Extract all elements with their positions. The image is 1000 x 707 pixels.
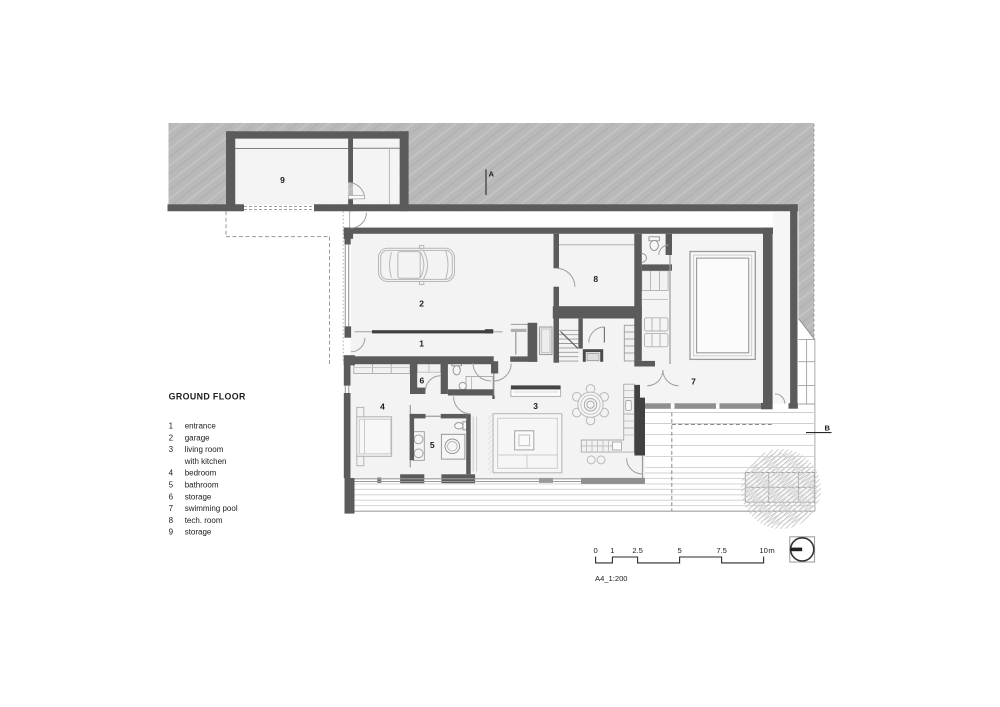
svg-text:2.5: 2.5 [632, 546, 643, 555]
svg-text:7.5: 7.5 [716, 546, 727, 555]
svg-text:m: m [768, 546, 774, 555]
svg-text:1: 1 [610, 546, 614, 555]
svg-text:garage: garage [185, 433, 210, 442]
svg-text:9: 9 [280, 175, 285, 185]
svg-text:9: 9 [169, 528, 174, 537]
svg-text:A4_1:200: A4_1:200 [595, 574, 628, 583]
svg-text:8: 8 [169, 516, 174, 525]
svg-text:storage: storage [185, 492, 212, 501]
svg-text:tech. room: tech. room [185, 516, 223, 525]
svg-text:4: 4 [169, 469, 174, 478]
svg-text:living room: living room [185, 445, 224, 454]
svg-text:GROUND FLOOR: GROUND FLOOR [169, 392, 246, 402]
svg-text:3: 3 [169, 445, 174, 454]
svg-text:7: 7 [169, 504, 174, 513]
svg-text:storage: storage [185, 528, 212, 537]
svg-text:8: 8 [593, 274, 598, 284]
svg-text:swimming pool: swimming pool [185, 504, 238, 513]
svg-text:A: A [489, 170, 495, 179]
svg-text:6: 6 [169, 492, 174, 501]
svg-text:bathroom: bathroom [185, 481, 219, 490]
svg-text:3: 3 [533, 401, 538, 411]
svg-text:7: 7 [691, 376, 696, 386]
svg-text:10: 10 [759, 546, 767, 555]
svg-text:1: 1 [419, 339, 424, 349]
svg-text:5: 5 [169, 481, 174, 490]
svg-text:entrance: entrance [185, 422, 217, 431]
svg-text:4: 4 [380, 401, 385, 411]
svg-text:0: 0 [593, 546, 597, 555]
svg-text:with kitchen: with kitchen [184, 457, 227, 466]
svg-text:5: 5 [430, 440, 435, 450]
svg-text:5: 5 [677, 546, 681, 555]
svg-text:2: 2 [169, 433, 174, 442]
svg-text:2: 2 [419, 299, 424, 309]
svg-text:1: 1 [169, 422, 174, 431]
svg-text:6: 6 [420, 376, 425, 386]
svg-text:bedroom: bedroom [185, 469, 217, 478]
svg-text:B: B [825, 424, 831, 433]
